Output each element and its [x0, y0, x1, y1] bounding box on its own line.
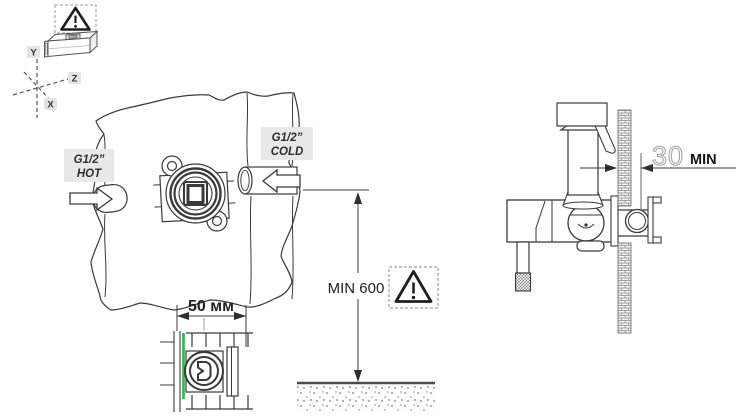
front-view: G1/2” HOT G1/2” COLD — [64, 92, 313, 310]
lever-knurled-tip — [516, 273, 531, 291]
wall-hatch-upper — [618, 110, 631, 206]
valve-bracket-plate — [648, 197, 653, 243]
clearance-value-text: 30 — [652, 141, 684, 171]
sprayer-base-ring — [563, 202, 603, 209]
warning-box-top — [55, 5, 96, 33]
hot-label: HOT — [77, 168, 102, 180]
install-notes: Y Z X — [13, 5, 97, 118]
depth-dimension-text: 50 мм — [188, 298, 234, 315]
side-view: 30 MIN — [507, 103, 736, 333]
mixer-lever-handle — [516, 242, 531, 291]
installation-diagram-page: Y Z X — [0, 0, 742, 416]
dim-arrow-down — [354, 370, 362, 382]
height-dimension-min600: MIN 600 — [297, 190, 438, 412]
warning-box-floor — [389, 267, 438, 308]
sprayer-head — [557, 103, 607, 126]
wall-hatch-lower — [618, 243, 631, 333]
sprayer-handle — [568, 129, 598, 195]
tile-comb-top — [186, 333, 253, 347]
cold-label: COLD — [271, 146, 304, 158]
tile-comb-bottom — [186, 395, 253, 409]
floor — [297, 383, 435, 412]
floor-speckle-band — [297, 385, 435, 412]
hot-size-label: G1/2” — [74, 154, 105, 166]
depth-dimension-50mm: 50 мм — [177, 298, 246, 347]
sprayer-holder-cup — [568, 205, 604, 241]
axis-y-label: Y — [30, 48, 37, 59]
diagram-canvas: Y Z X — [0, 0, 742, 416]
axis-z-label: Z — [72, 74, 78, 85]
wall-escutcheon-plate — [611, 196, 618, 246]
dim-arrow-up — [354, 192, 362, 204]
dim-arrow-right — [234, 312, 246, 320]
valve-flange-section — [227, 347, 238, 396]
wall-hatch-ticks — [160, 342, 174, 385]
spirit-level-icon — [45, 32, 98, 58]
height-dimension-text: MIN 600 — [328, 280, 385, 297]
wall-section-view — [160, 331, 253, 412]
axis-x-label: X — [47, 100, 54, 111]
hand-sprayer — [557, 103, 615, 209]
clearance-unit-text: MIN — [690, 152, 717, 168]
cold-size-label: G1/2” — [272, 132, 303, 144]
dim-arrow-to-wall — [605, 164, 617, 172]
valve-cartridge-stem — [188, 186, 203, 203]
body-under-cap — [577, 241, 604, 251]
